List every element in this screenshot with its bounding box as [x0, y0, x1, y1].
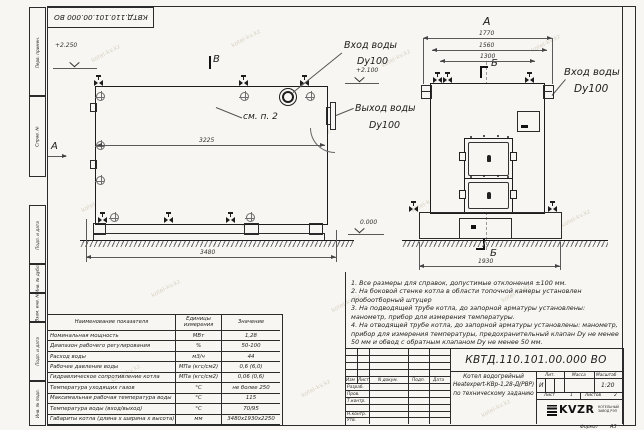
spec-cell: Максимальная рабочая температура воды: [48, 394, 176, 404]
control-panel-slot: [521, 125, 528, 128]
tb-col-data: Дата: [433, 378, 444, 383]
margin-field-inv-podl: Инв. № подл.: [29, 380, 46, 426]
margin-field-podp-data-2: Подп. и дата: [29, 321, 46, 382]
dim-text-1930: 1930: [478, 258, 493, 265]
lifting-lug-icon: [110, 213, 119, 222]
note-line: 4. На отводящей трубе котла, до запорной…: [351, 321, 619, 346]
elevation-text: +2.100: [356, 67, 378, 74]
section-mark-b-top-tick: [480, 66, 488, 68]
lifting-lug-icon: [306, 92, 315, 101]
spec-cell: м3/ч: [176, 352, 222, 362]
margin-field-label: Подп. и дата: [35, 337, 40, 366]
spec-cell: 50-100: [222, 341, 280, 351]
dim-arrow: [555, 264, 560, 268]
spec-cell: %: [176, 341, 222, 351]
valve-icon: [226, 212, 235, 223]
scale-label: Масштаб: [596, 373, 616, 378]
upper-furnace-door: [464, 138, 513, 180]
product-name-line1: Котел водогрейный: [451, 373, 536, 381]
door-hinge: [459, 190, 466, 199]
valve-icon: [433, 72, 442, 83]
spec-header-value: Значение: [222, 315, 280, 331]
spec-cell: МПа (кгс/см2): [176, 362, 222, 372]
spec-cell: 115: [222, 394, 280, 404]
margin-field-vzam-inv: Взам. инв. №: [29, 292, 46, 323]
doc-number-top-box: КВТД.110.101.00.000 ВО: [47, 7, 154, 28]
lit-label: Лит.: [545, 373, 555, 378]
dim-arrow: [530, 59, 535, 63]
door-handle: [487, 155, 491, 162]
tb-row-prov: Пров.: [347, 392, 360, 397]
front-base-opening: [459, 218, 512, 239]
product-name-line2: Heatexpert-КВр-1,28-Д(РВР): [451, 381, 536, 389]
spec-cell: 70/95: [222, 404, 280, 414]
kvzr-logo-text: KVZR: [559, 403, 594, 416]
tb-col-list: Лист: [358, 378, 369, 383]
spec-cell: °С: [176, 383, 222, 393]
inlet-side-dn: Dy100: [357, 56, 388, 67]
notes-block: 1. Все размеры для справок, допустимые о…: [351, 279, 619, 347]
spec-cell: °С: [176, 394, 222, 404]
tb-line: [345, 417, 450, 418]
dim-arrow: [432, 48, 437, 52]
side-base-support: [244, 223, 259, 235]
spec-cell: Температура уходящих газов: [48, 383, 176, 393]
ext-line: [552, 38, 553, 84]
section-mark-b-bottom-tick: [476, 248, 484, 250]
elevation-line: [348, 234, 384, 235]
dim-arrow: [97, 143, 102, 147]
spec-cell: 3480х1930х2250: [222, 415, 280, 425]
dim-arrow: [86, 255, 91, 259]
tb-line: [429, 348, 430, 424]
kvzr-sub-line2: ЗАВОД РЭП: [598, 410, 619, 414]
spec-cell: Рабочее давление воды: [48, 362, 176, 372]
tb-line: [369, 348, 370, 424]
valve-icon: [164, 212, 173, 223]
flange-bolt-line: [543, 91, 552, 92]
valve-icon: [548, 201, 557, 212]
elevation-text: +2.250: [55, 42, 77, 49]
sheet-label: Лист: [544, 393, 555, 398]
tb-row-nkontr: Н.контр.: [347, 412, 366, 417]
spec-cell: °С: [176, 404, 222, 414]
control-panel: [517, 111, 540, 132]
ext-line: [336, 230, 337, 262]
margin-field-label: Инв. № подл.: [35, 389, 40, 418]
view-mark-b: [209, 56, 211, 69]
tb-line: [580, 392, 581, 399]
spec-cell: не более 250: [222, 383, 280, 393]
sheet-value: 1: [570, 393, 573, 398]
side-stub-2: [90, 160, 97, 169]
tb-row-tkontr: Т.контр.: [347, 399, 366, 404]
elevation-mark-icon: [355, 77, 364, 84]
mass-label: Масса: [572, 373, 586, 378]
kvzr-logo-mark-icon: [547, 405, 557, 416]
margin-field-sprav-n: Справ. №: [29, 95, 46, 177]
lower-furnace-door: [464, 178, 513, 213]
tb-col-ndokum: N докум.: [378, 378, 398, 383]
dimension-line-3480: [86, 257, 336, 258]
product-name-line3: по техническому заданию: [451, 390, 536, 398]
dimension-line-1300: [440, 61, 535, 62]
lifting-lug-icon: [246, 213, 255, 222]
lit-value: И: [539, 382, 544, 389]
tb-row-razrab: Разраб.: [347, 385, 364, 390]
spec-cell: Номинальная мощность: [48, 331, 176, 341]
tb-line: [345, 369, 450, 370]
tb-line: [345, 404, 450, 405]
spec-cell: Расход воды: [48, 352, 176, 362]
doc-number: КВТД.110.101.00.000 ВО: [465, 354, 607, 366]
note-ref-label: см. п. 2: [243, 112, 278, 122]
dimension-line-1930: [419, 266, 560, 267]
spec-cell: 0,6 (6,0): [222, 362, 280, 372]
tb-line: [345, 390, 450, 391]
product-name-cell: Котел водогрейный Heatexpert-КВр-1,28-Д(…: [451, 373, 536, 407]
door-hinge: [510, 190, 517, 199]
spec-header-units: Единицы измерения: [176, 315, 222, 331]
view-direction-a-label: А: [51, 141, 58, 152]
format-label: Формат: [580, 425, 598, 430]
dim-arrow: [440, 59, 445, 63]
door-hinge: [510, 152, 517, 161]
margin-field-label: Взам. инв. №: [35, 293, 40, 321]
valve-icon: [94, 75, 103, 86]
lifting-lug-icon: [96, 176, 105, 185]
outlet-flange-plate: [330, 102, 336, 130]
sheets-value: 2: [614, 393, 617, 398]
valve-icon: [525, 72, 534, 83]
spec-cell: 0,06 (0,6): [222, 373, 280, 383]
dim-arrow: [423, 36, 428, 40]
elevation-text: 0.000: [360, 219, 377, 226]
margin-field-perv-primen: Перв. примен.: [29, 7, 46, 97]
spec-cell: Температура воды (вход/выход): [48, 404, 176, 414]
valve-icon: [239, 75, 248, 86]
ash-opening: [471, 225, 476, 229]
ground-hatch-front: [402, 240, 608, 247]
flange-bolt-line: [421, 91, 430, 92]
side-base-support: [93, 223, 106, 235]
valve-icon: [98, 212, 107, 223]
valve-icon: [409, 201, 418, 212]
outlet-side-dn: Dy100: [369, 120, 400, 131]
ext-line: [560, 242, 561, 270]
margin-field-label: Инв. № дубл.: [35, 264, 40, 293]
spec-cell: Диапазон рабочего регулирования: [48, 341, 176, 351]
margin-field-label: Подп. и дата: [35, 221, 40, 250]
spec-cell: Гидравлическое сопротивление котла: [48, 373, 176, 383]
tb-line: [345, 355, 450, 356]
margin-field-label: Перв. примен.: [35, 36, 40, 67]
margin-field-label: Справ. №: [35, 126, 40, 146]
kvzr-logo-subtext: КОТЕЛЬНЫЙ ЗАВОД РЭП: [598, 406, 619, 414]
outlet-side-label: Выход воды: [355, 103, 416, 114]
tb-col-podp: Подп.: [412, 378, 425, 383]
drawing-sheet: kotel-kv.kz kotel-kv.kz kotel-kv.kz kote…: [0, 0, 644, 430]
view-label-a: А: [483, 15, 491, 28]
side-stub-1: [90, 103, 97, 112]
tb-line: [554, 378, 555, 392]
inlet-front-label: Вход воды: [564, 67, 620, 78]
tb-line: [536, 378, 622, 379]
lifting-lug-icon: [240, 92, 249, 101]
section-mark-b-top: [480, 66, 482, 78]
inlet-side-label: Вход воды: [344, 40, 397, 51]
margin-field-podp-data-1: Подп. и дата: [29, 205, 46, 265]
spec-cell: МПа (кгс/см2): [176, 373, 222, 383]
lifting-lug-icon: [96, 92, 105, 101]
tb-line: [408, 348, 409, 424]
boiler-side-body: [95, 86, 328, 225]
tb-line: [564, 371, 565, 392]
doc-number-top: КВТД.110.101.00.000 ВО: [54, 13, 148, 22]
ext-line: [423, 38, 424, 84]
elevation-mark-icon: [355, 228, 364, 235]
dimension-line-1770: [423, 38, 552, 39]
dim-arrow: [542, 48, 547, 52]
spec-table: Наименование показателя Единицы измерени…: [47, 314, 283, 426]
ground-hatch-side: [80, 240, 354, 247]
dimension-line-3225: [97, 145, 325, 146]
dim-arrow: [547, 36, 552, 40]
valve-icon: [443, 72, 452, 83]
elevation-mark-icon: [70, 62, 79, 69]
spec-cell: мм: [176, 415, 222, 425]
spec-cell: 1,28: [222, 331, 280, 341]
doc-number-cell: КВТД.110.101.00.000 ВО: [450, 348, 622, 371]
spec-header-name: Наименование показателя: [48, 315, 176, 331]
dim-text-1300: 1300: [480, 53, 495, 60]
front-right-flange: [543, 85, 554, 99]
view-label-b: В: [213, 54, 220, 65]
tb-row-utv: Утв.: [347, 418, 356, 423]
door-handle: [487, 192, 491, 199]
note-line: 2. На боковой стенке котла в области топ…: [351, 287, 619, 304]
side-base-support: [309, 223, 323, 235]
tb-col-izm: Изм: [346, 378, 355, 383]
note-line: 1. Все размеры для справок, допустимые о…: [351, 279, 619, 287]
view-direction-a-arrowhead: [62, 154, 67, 158]
margin-field-inv-dubl: Инв. № дубл.: [29, 263, 46, 294]
dimension-line-1560: [432, 50, 547, 51]
dim-arrow: [331, 255, 336, 259]
tb-line: [594, 371, 595, 392]
front-left-flange: [421, 85, 432, 99]
sheets-label: Листов: [585, 393, 601, 398]
dim-text-3480: 3480: [200, 249, 215, 256]
spec-cell: МВт: [176, 331, 222, 341]
tb-line: [345, 362, 450, 363]
spec-cell: 44: [222, 352, 280, 362]
door-hinge: [459, 152, 466, 161]
dim-arrow: [419, 264, 424, 268]
dim-arrow: [320, 143, 325, 147]
dim-text-1560: 1560: [479, 42, 494, 49]
tb-line: [545, 378, 546, 392]
spec-cell: Габариты котла (длина х ширина х высота): [48, 415, 176, 425]
inlet-front-dn: Dy100: [574, 83, 608, 95]
scale-value: 1:20: [601, 382, 614, 389]
dim-text-1770: 1770: [479, 30, 494, 37]
format-value: А3: [610, 424, 617, 430]
note-line: 3. На подводящей трубе котла, до запорно…: [351, 304, 619, 321]
tb-line: [536, 399, 622, 400]
dim-text-3225: 3225: [199, 137, 214, 144]
